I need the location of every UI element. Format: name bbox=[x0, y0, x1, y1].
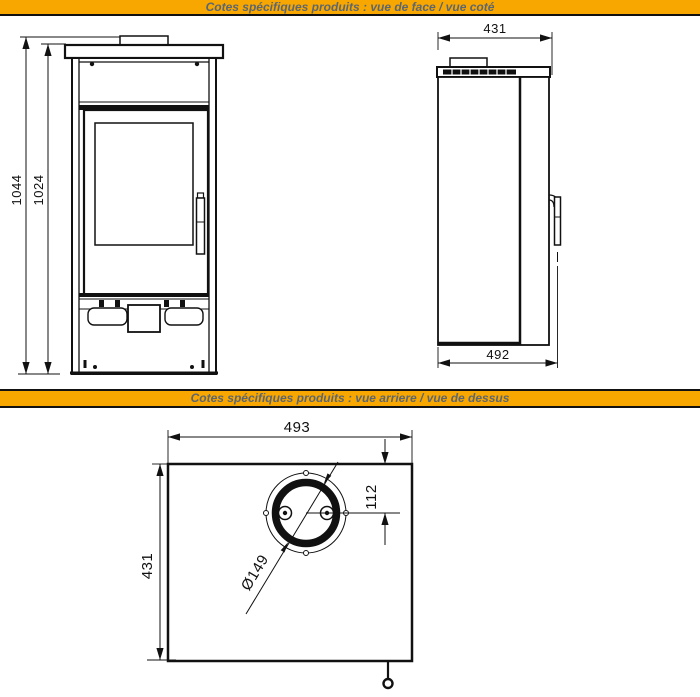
dim-label-depth-overall: 492 bbox=[486, 347, 509, 362]
air-inlet-right bbox=[165, 308, 203, 325]
panel-screw-left bbox=[90, 62, 94, 66]
front-flue-collar bbox=[120, 36, 168, 45]
technical-drawing-page: Cotes spécifiques produits : vue de face… bbox=[0, 0, 700, 697]
front-top-plate bbox=[65, 45, 223, 58]
front-view-drawing: 1044 1024 bbox=[9, 36, 223, 374]
ash-box bbox=[128, 305, 160, 332]
top-view-drawing: 493 431 bbox=[139, 419, 412, 688]
side-flue-collar bbox=[450, 58, 487, 67]
dim-label-depth-top: 431 bbox=[483, 21, 506, 36]
door-handle-top-view bbox=[384, 661, 393, 688]
air-inlet-left bbox=[88, 308, 127, 325]
side-view-drawing: 431 492 bbox=[437, 21, 561, 368]
side-body-outline bbox=[438, 77, 549, 345]
dim-label-depth: 431 bbox=[139, 553, 156, 580]
dim-label-flue-offset: 112 bbox=[363, 484, 380, 509]
door-glass bbox=[95, 123, 193, 245]
dim-label-height-body: 1024 bbox=[31, 175, 46, 206]
dim-label-width: 493 bbox=[284, 419, 311, 436]
stove-dimension-drawing: 1044 1024 bbox=[0, 0, 700, 697]
dim-label-height-total: 1044 bbox=[9, 175, 24, 206]
panel-screw-right bbox=[195, 62, 199, 66]
